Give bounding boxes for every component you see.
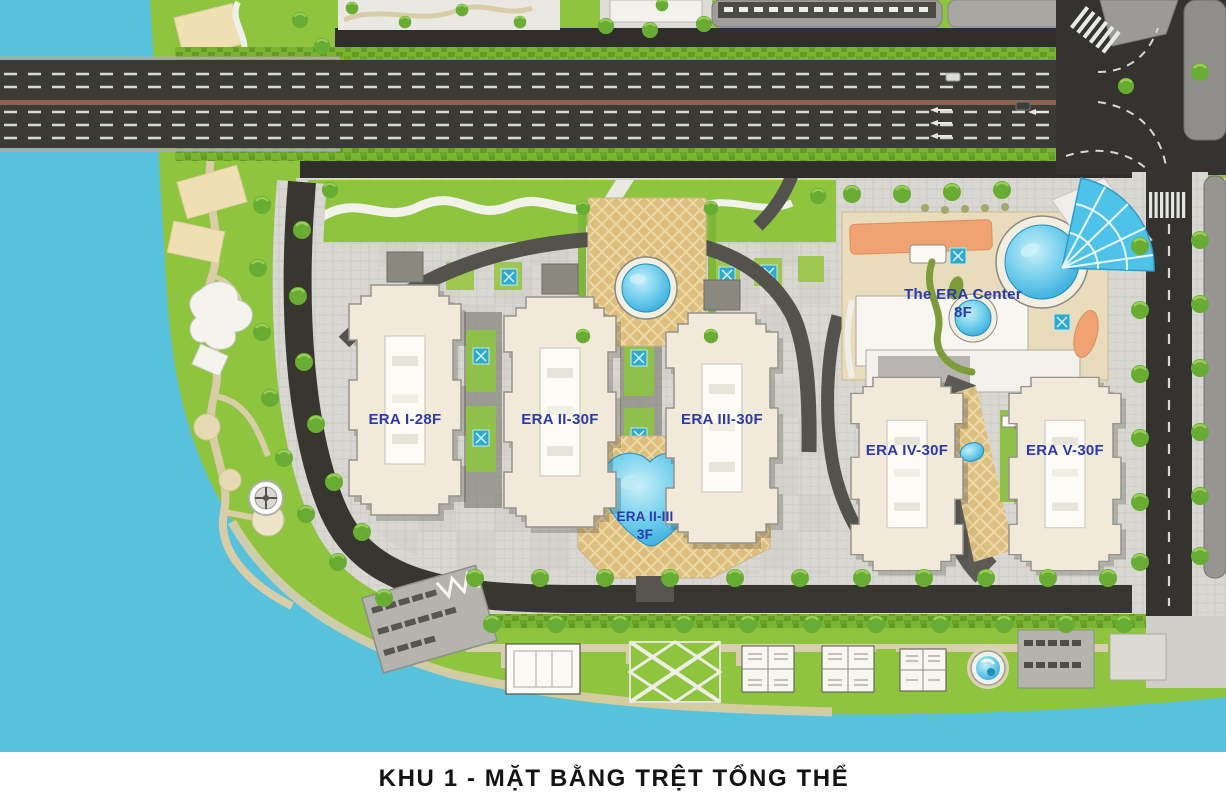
car: [946, 73, 960, 81]
label-podium[interactable]: ERA II-III: [616, 509, 673, 524]
park-fountain: [249, 481, 283, 515]
label-era-3[interactable]: ERA III-30F: [681, 411, 763, 428]
grid-courts: [742, 646, 946, 692]
site-plan: ERA I-28F ERA II-30F ERA III-30F ERA IV-…: [0, 0, 1226, 800]
plaza-fountain: [501, 269, 517, 285]
entry-pavilion: [704, 280, 740, 310]
tower-era-1[interactable]: [349, 285, 466, 521]
pavilion-slab: [1110, 634, 1166, 680]
plan-title: KHU 1 - MẶT BẰNG TRỆT TỔNG THỂ: [379, 764, 850, 792]
label-era-1[interactable]: ERA I-28F: [369, 411, 442, 428]
label-era-5[interactable]: ERA V-30F: [1026, 442, 1104, 459]
tower-era-3[interactable]: [666, 313, 783, 549]
x-garden: [630, 642, 720, 702]
title-bar: KHU 1 - MẶT BẰNG TRỆT TỔNG THỂ: [0, 752, 1226, 800]
round-pool: [622, 264, 670, 312]
tower-era-5[interactable]: [1009, 377, 1126, 575]
label-podium-floors[interactable]: 3F: [637, 527, 653, 542]
tower-era-4[interactable]: [851, 377, 968, 575]
court-white: [506, 644, 580, 694]
median: [0, 100, 1062, 105]
bridge-highway: [0, 28, 1226, 178]
label-era-center-floors[interactable]: 8F: [954, 304, 972, 321]
entry-pavilion: [387, 252, 423, 282]
car: [1016, 102, 1030, 110]
parking-lot-east: [1018, 630, 1094, 688]
entry-pavilion: [542, 264, 578, 294]
label-era-4[interactable]: ERA IV-30F: [866, 442, 948, 459]
promenade-fountain: [967, 647, 1009, 689]
label-era-2[interactable]: ERA II-30F: [521, 411, 598, 428]
label-era-center[interactable]: The ERA Center: [904, 286, 1022, 303]
